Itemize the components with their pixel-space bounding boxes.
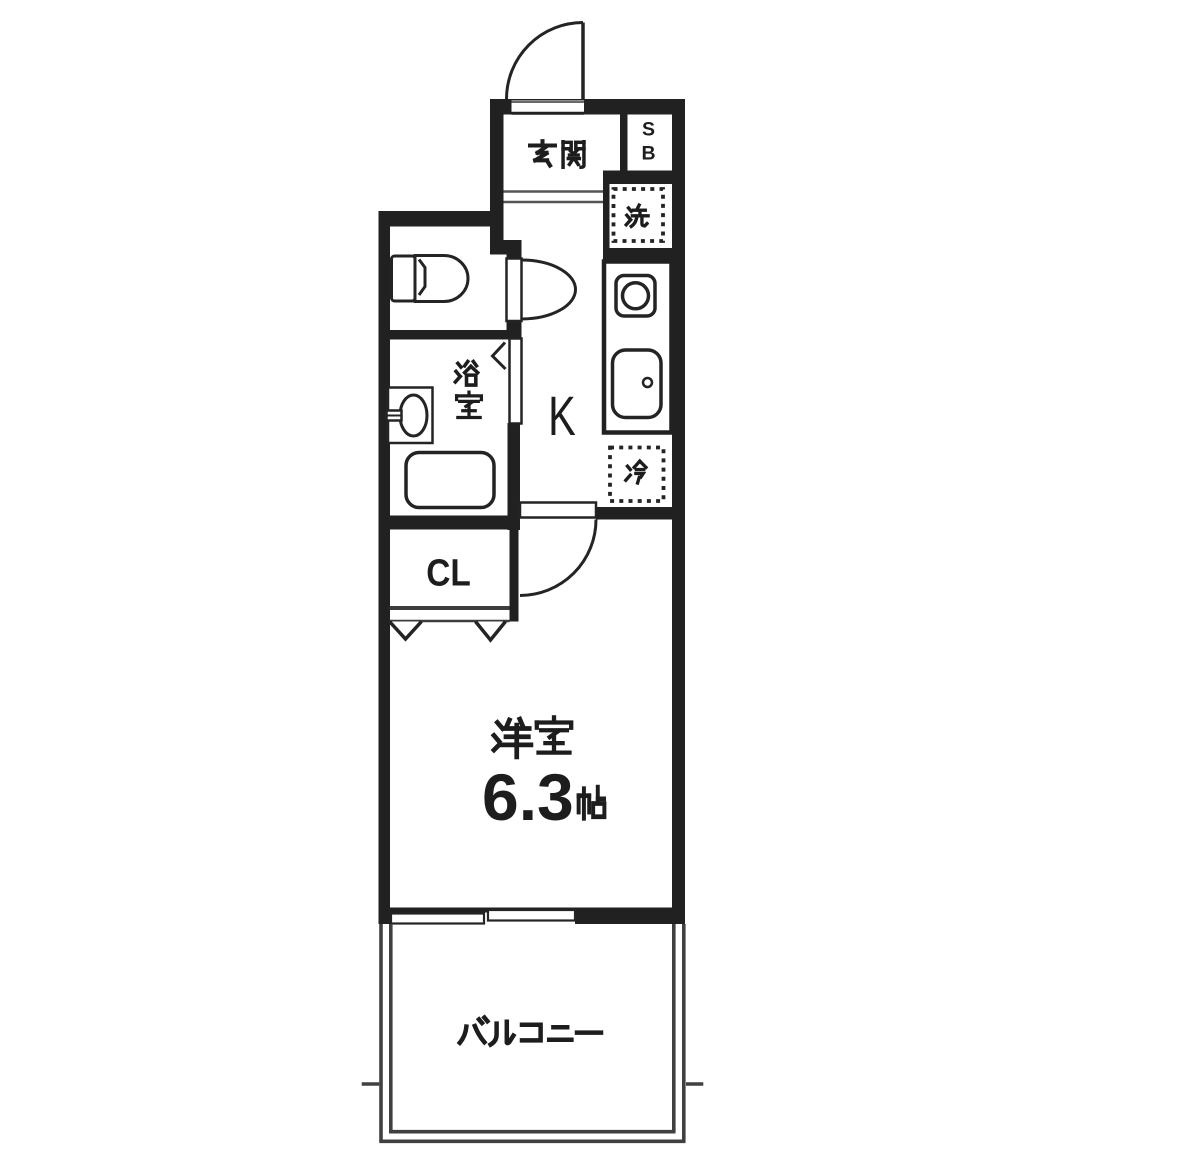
svg-text:K: K: [548, 385, 576, 448]
svg-text:B: B: [641, 143, 655, 165]
svg-text:CL: CL: [426, 552, 471, 594]
svg-text:6.3: 6.3: [482, 760, 574, 834]
svg-text:S: S: [642, 119, 655, 141]
